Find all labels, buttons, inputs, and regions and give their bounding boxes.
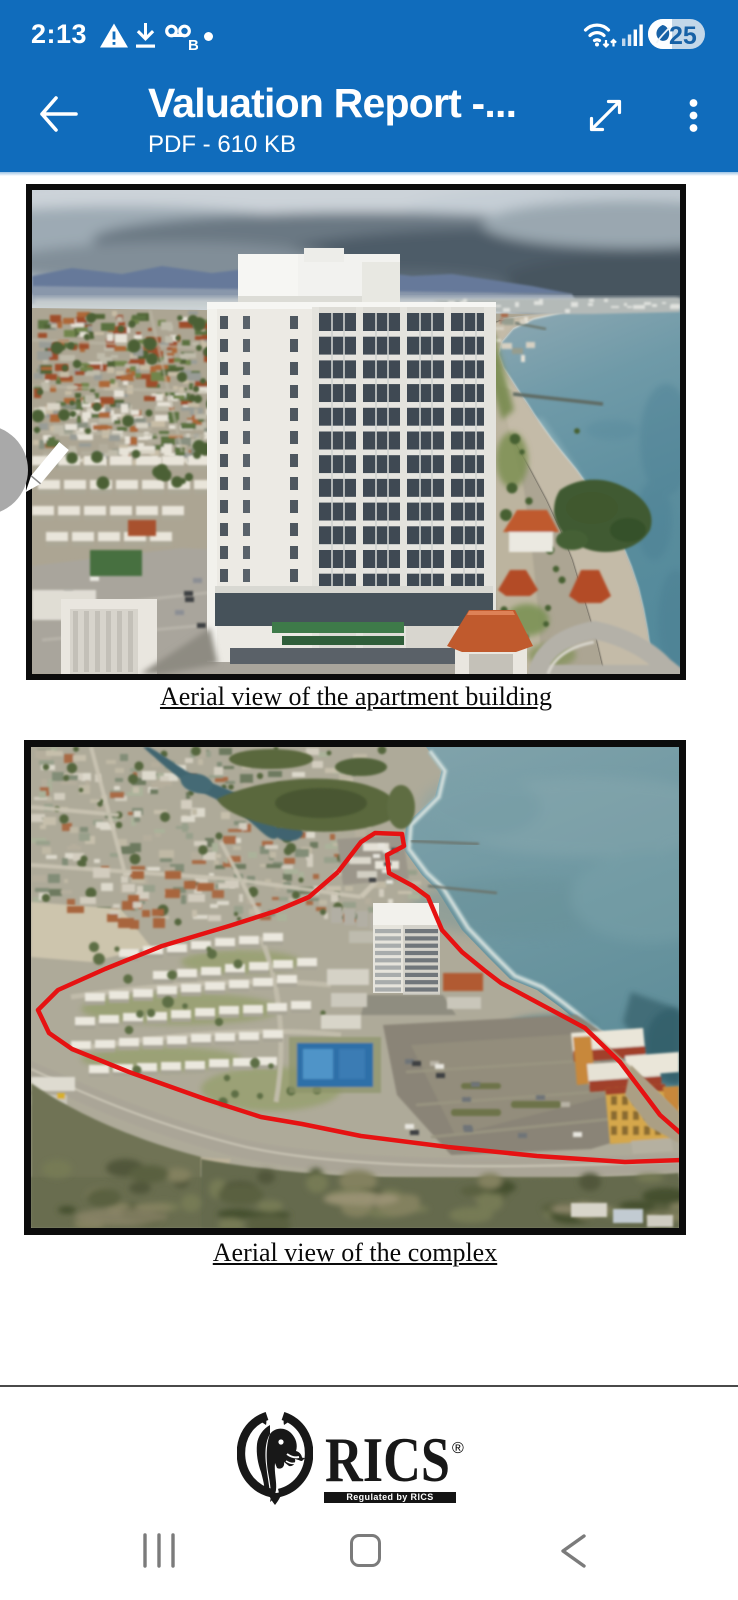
svg-text:B: B	[188, 37, 198, 51]
